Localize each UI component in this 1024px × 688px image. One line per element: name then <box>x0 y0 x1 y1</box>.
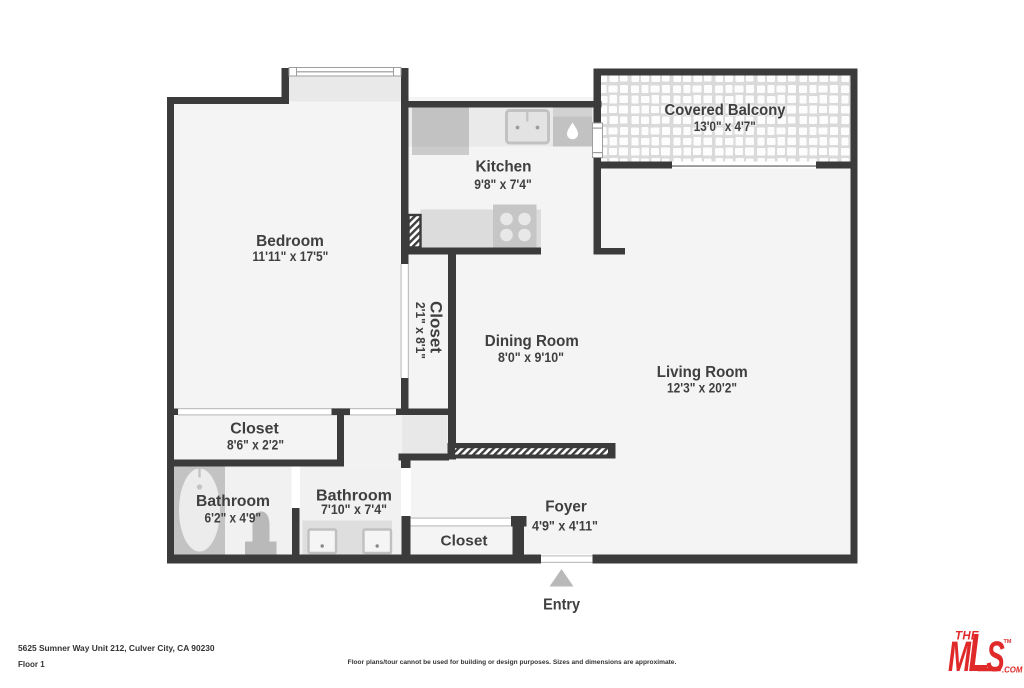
svg-text:2'1" x 8'1": 2'1" x 8'1" <box>413 302 427 359</box>
svg-text:6'2" x 4'9": 6'2" x 4'9" <box>205 511 262 526</box>
svg-text:4'9" x 4'11": 4'9" x 4'11" <box>532 519 598 534</box>
svg-text:11'11" x 17'5": 11'11" x 17'5" <box>252 249 328 264</box>
svg-text:13'0" x 4'7": 13'0" x 4'7" <box>694 119 756 134</box>
svg-text:Bedroom: Bedroom <box>256 233 324 250</box>
svg-text:Kitchen: Kitchen <box>476 159 532 176</box>
svg-text:Covered Balcony: Covered Balcony <box>665 102 786 119</box>
svg-text:8'0" x 9'10": 8'0" x 9'10" <box>498 350 564 365</box>
svg-text:Closet: Closet <box>441 533 488 550</box>
svg-text:8'6" x 2'2": 8'6" x 2'2" <box>227 438 284 453</box>
svg-text:Dining Room: Dining Room <box>485 333 579 350</box>
svg-text:9'8" x 7'4": 9'8" x 7'4" <box>474 177 532 192</box>
svg-text:TM: TM <box>1004 639 1012 645</box>
svg-text:Closet: Closet <box>427 301 446 353</box>
svg-text:Living Room: Living Room <box>657 364 748 381</box>
svg-text:.COM: .COM <box>1002 666 1023 675</box>
svg-text:Entry: Entry <box>543 597 580 614</box>
svg-text:Bathroom: Bathroom <box>196 493 270 510</box>
svg-text:Closet: Closet <box>230 421 279 438</box>
svg-text:12'3" x 20'2": 12'3" x 20'2" <box>667 381 737 396</box>
svg-text:7'10" x 7'4": 7'10" x 7'4" <box>321 502 387 517</box>
svg-text:Foyer: Foyer <box>545 499 587 516</box>
